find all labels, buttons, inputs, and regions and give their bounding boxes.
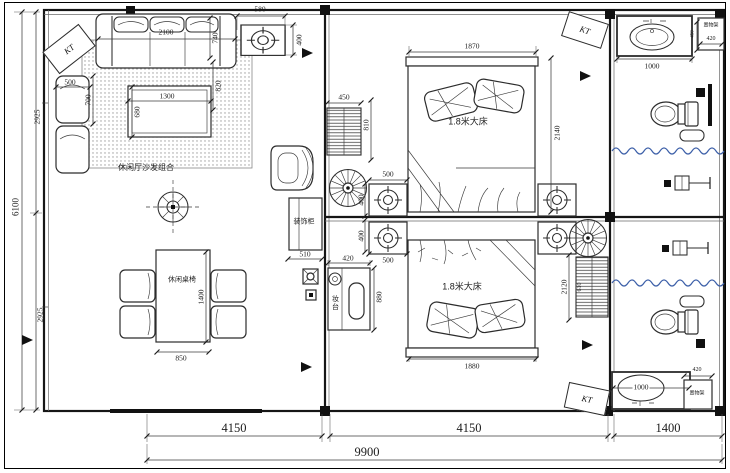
radiator-1 [327, 108, 361, 155]
dim-nightstand-bottom: 500 [382, 256, 393, 264]
dim-bed1-length: 2140 [553, 126, 561, 141]
dim-vanity-length: 880 [375, 291, 383, 302]
ac-unit-label-2: KT [579, 24, 592, 37]
dim-sink-top-width: 1000 [645, 62, 660, 70]
dim-sink-bottom-width: 1000 [633, 383, 650, 391]
toilet-mat-top [680, 130, 704, 141]
dim-sink-top-depth: 450 [691, 30, 696, 38]
sink-bottom [612, 372, 690, 409]
ac-unit-label-3: KT [581, 393, 593, 405]
dim-sofa-depth: 740 [211, 32, 219, 43]
dim-nightstand-side-1: 400 [357, 194, 365, 205]
label-shelf-top: 置物架 [703, 24, 718, 29]
dim-dining-width: 850 [175, 354, 186, 362]
nightstand-downlight-icon-3 [538, 184, 576, 216]
shower-curtain-top [612, 148, 724, 154]
window-band [110, 409, 262, 413]
dining-set [120, 250, 246, 342]
label-bed-1: 1.8米大床 [448, 118, 488, 127]
ac-unit-label-1: KT [62, 42, 76, 56]
shower-head-icon-bottom [662, 241, 708, 255]
dim-coffee-table-depth: 680 [133, 106, 141, 117]
ceiling-fan-icon-2 [570, 220, 607, 257]
sink-top [617, 16, 692, 56]
dim-shelf-bottom-width: 420 [693, 367, 702, 373]
floor-drain-bottom [696, 339, 705, 348]
dim-left-lower: 2925 [36, 308, 44, 323]
dim-coffee-table-width: 1300 [160, 92, 175, 100]
floor-plan-canvas: 2925 6100 2925 580 400 2100 740 820 500 … [0, 0, 730, 473]
dim-sofa-gap: 820 [214, 80, 222, 91]
dim-bottom-module-right: 1400 [656, 422, 681, 435]
dim-dining-length: 1400 [197, 290, 205, 305]
electrical-symbols [303, 269, 318, 300]
grab-bar [708, 84, 712, 126]
dim-bottom-module-mid: 4150 [457, 422, 482, 435]
label-shelf-bottom: 置物架 [689, 392, 704, 397]
dim-bottom-module-left: 4150 [222, 422, 247, 435]
label-dining-set: 休闲桌椅 [168, 277, 196, 284]
dim-lamp-table-depth: 400 [295, 34, 303, 45]
dim-radiator2-width: 610 [577, 283, 583, 292]
dim-armchair-depth: 700 [84, 94, 92, 105]
dim-radiator1-width: 450 [338, 93, 349, 101]
toilet-icon-bottom [651, 310, 698, 334]
dim-bed2-width: 1880 [465, 362, 480, 370]
dim-nightstand-side-2: 400 [357, 230, 365, 241]
dim-lamp-table-width: 580 [254, 5, 265, 13]
shower-curtain-bottom [612, 280, 724, 286]
dim-left-upper: 2925 [33, 110, 41, 125]
toilet-icon-top [651, 102, 698, 126]
armchair-2 [56, 126, 89, 173]
label-sofa-group: 休闲厅沙发组合 [118, 164, 174, 172]
label-bed-2: 1.8米大床 [442, 283, 482, 292]
dim-vanity-width: 420 [342, 254, 353, 262]
label-decor-cabinet: 装饰柜 [294, 219, 315, 226]
bed-2 [406, 240, 538, 357]
dim-cabinet-width: 510 [299, 250, 310, 258]
dim-radiator1-length: 810 [362, 119, 370, 130]
lounge-chair [271, 146, 313, 190]
toilet-mat-bottom [680, 296, 704, 307]
dim-sofa-width: 2100 [159, 28, 174, 36]
dim-bottom-total: 9900 [354, 446, 381, 459]
dim-radiator2-length: 2120 [560, 280, 568, 295]
side-table-downlight-icon [241, 25, 285, 55]
floor-drain-top [696, 88, 705, 97]
dim-bed1-width: 1870 [465, 42, 480, 50]
dim-shelf-top-width: 420 [707, 36, 716, 42]
nightstand-downlight-icon-1 [369, 184, 407, 216]
nightstand-downlight-icon-2 [369, 222, 407, 254]
shower-head-icon-top [664, 176, 710, 190]
label-vanity: 妆台 [332, 295, 339, 311]
bed-1 [406, 57, 538, 212]
dim-armchair-width: 500 [64, 78, 75, 86]
ceiling-lamp-icon [146, 180, 200, 234]
dim-left-total: 6100 [12, 198, 21, 216]
dim-nightstand-top: 500 [382, 170, 393, 178]
